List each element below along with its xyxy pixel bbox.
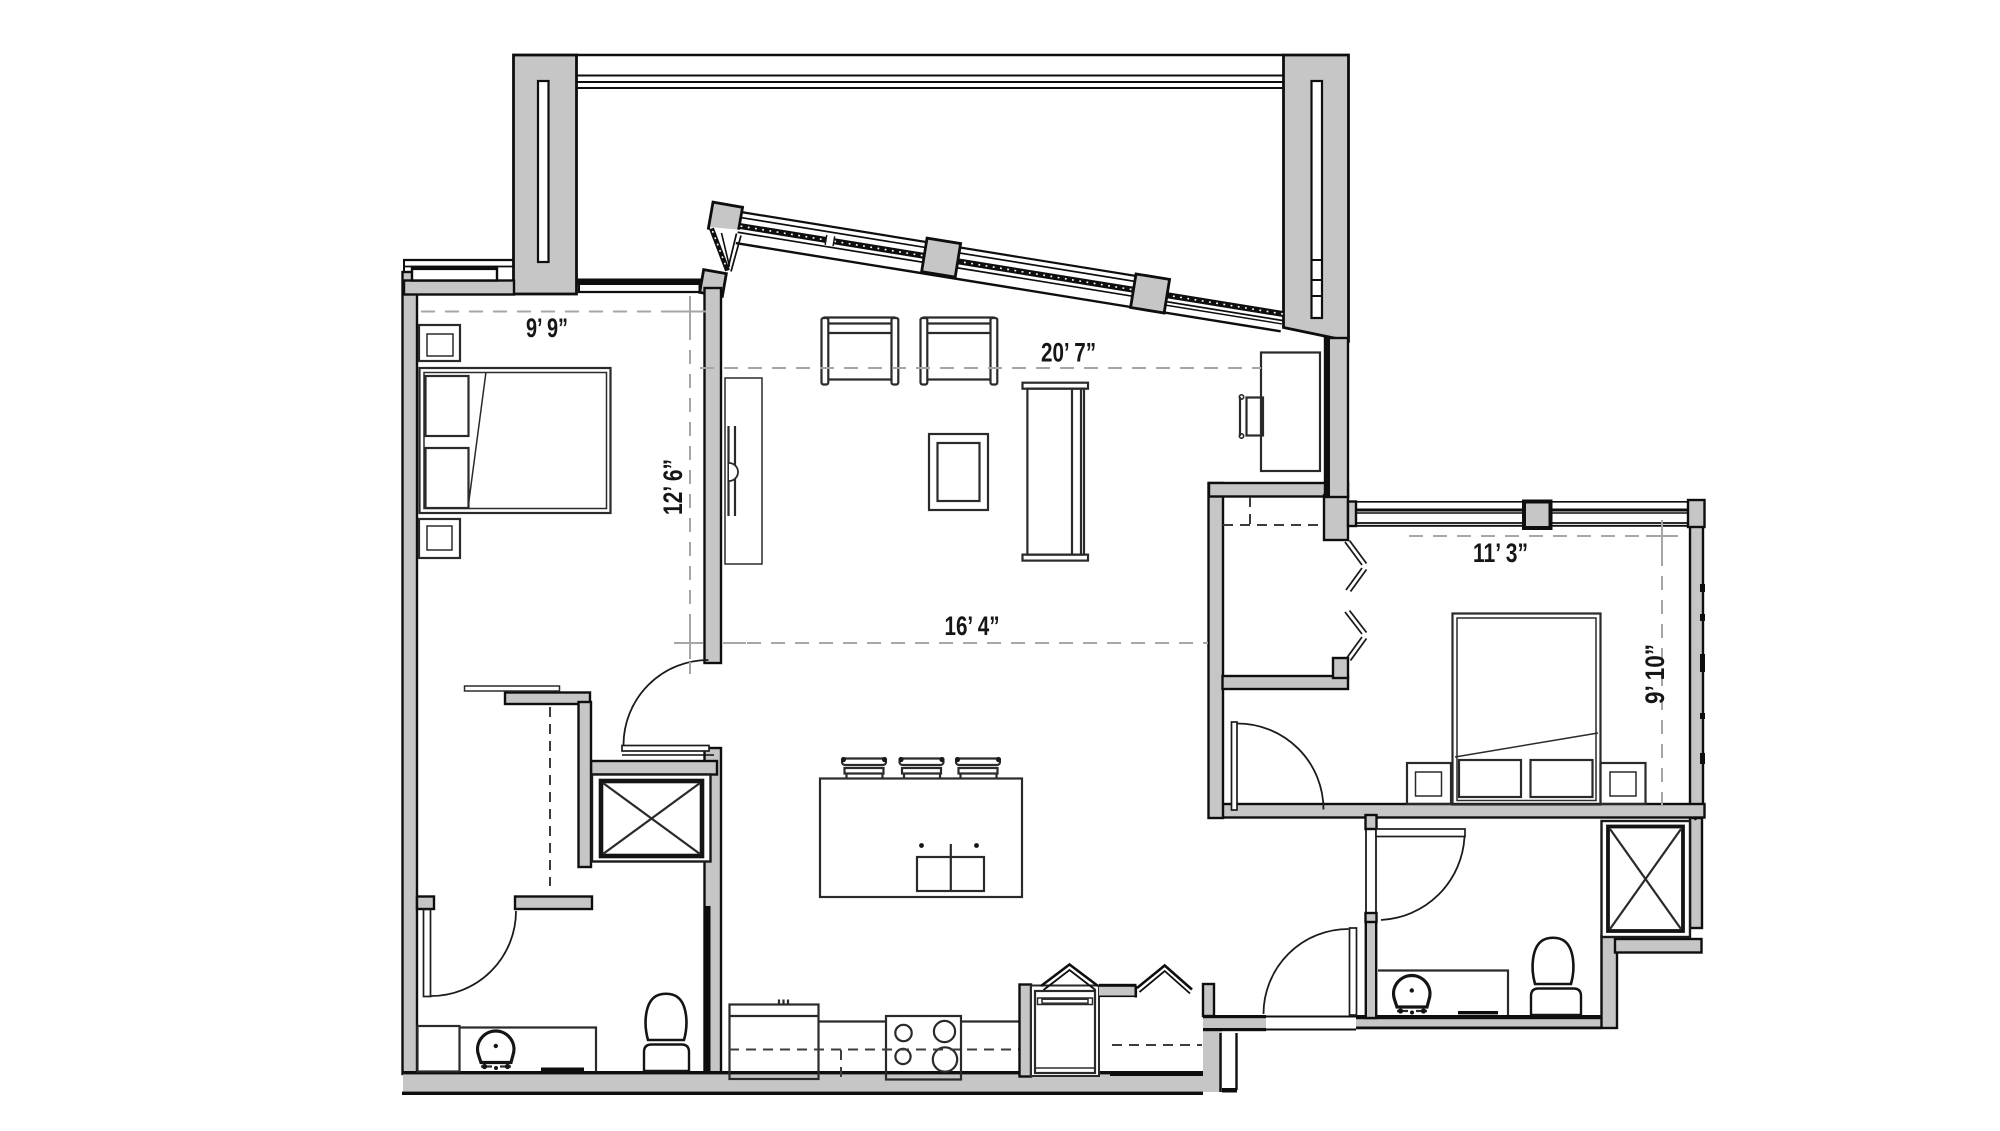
svg-text:11’ 3”: 11’ 3” (1473, 538, 1528, 568)
svg-text:12’ 6”: 12’ 6” (658, 459, 688, 515)
svg-text:9’ 10”: 9’ 10” (1640, 644, 1670, 704)
svg-text:16’ 4”: 16’ 4” (945, 611, 1000, 641)
svg-text:20’ 7”: 20’ 7” (1041, 338, 1096, 368)
svg-text:9’ 9”: 9’ 9” (526, 313, 568, 343)
